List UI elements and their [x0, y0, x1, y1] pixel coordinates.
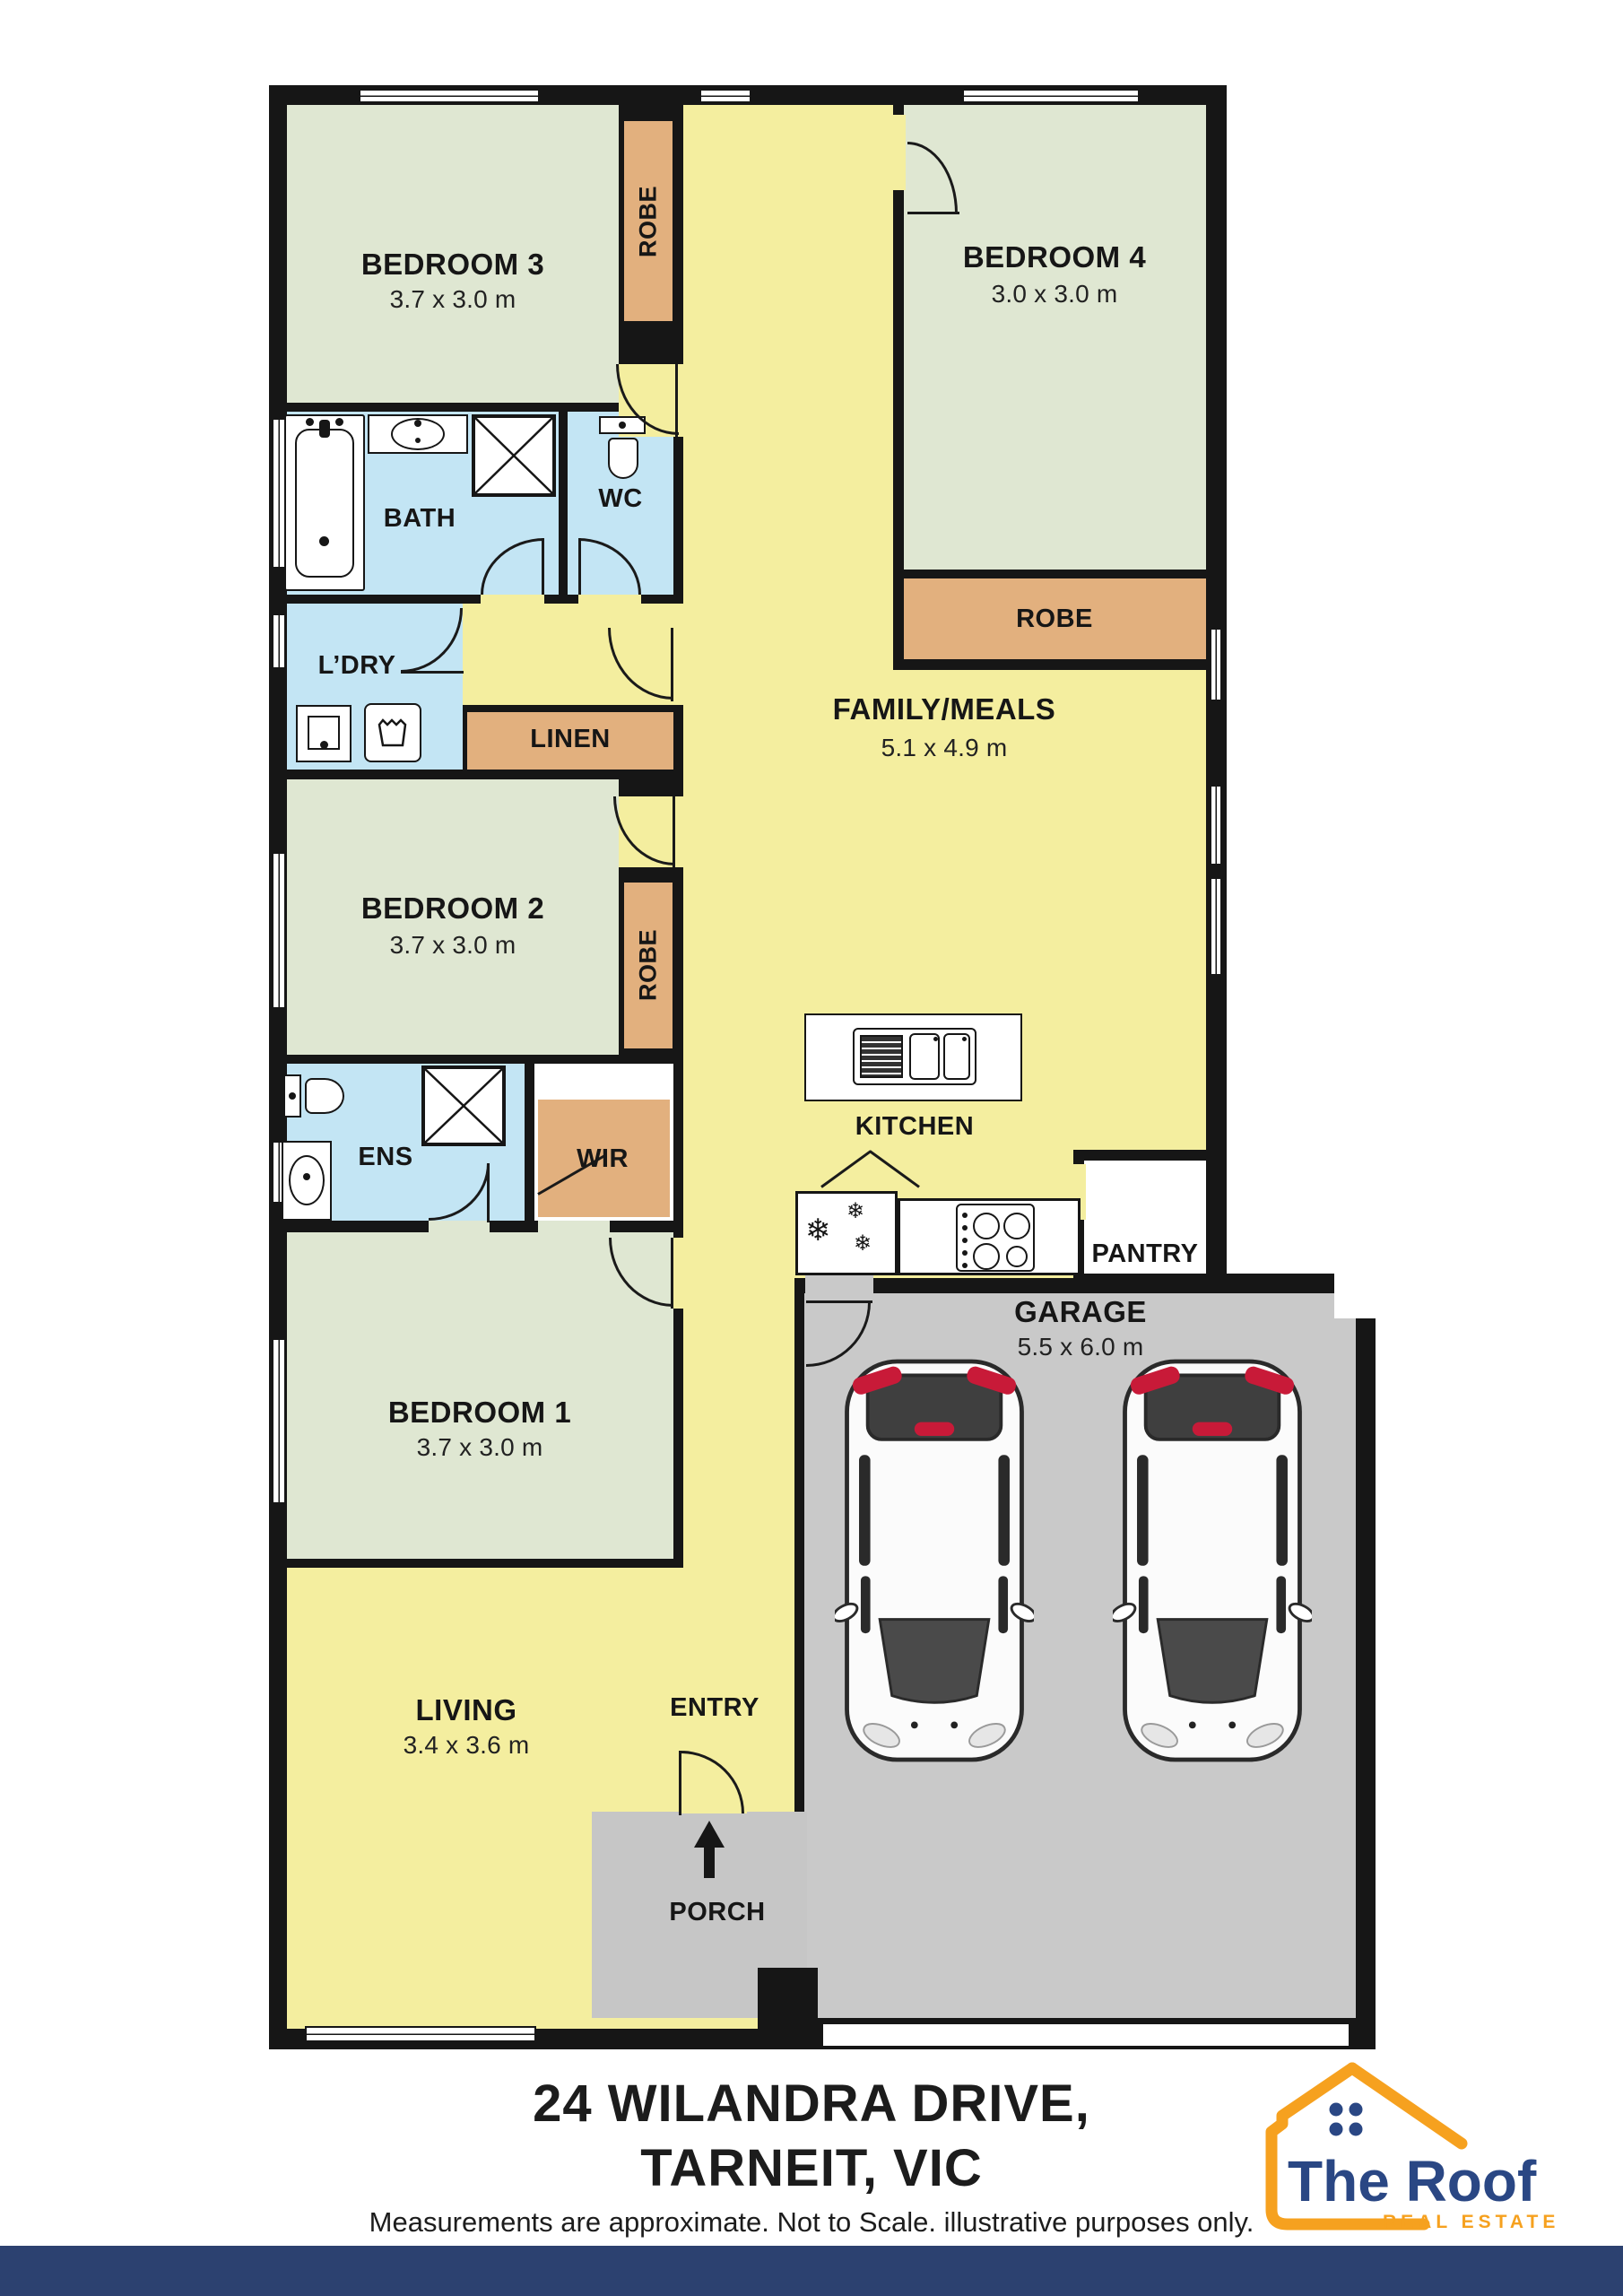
- cooktop-knob: [962, 1263, 968, 1268]
- bathtub-inner: [295, 429, 354, 578]
- floorplan-page: ❄ ❄ ❄: [0, 0, 1623, 2296]
- door-leaf-entry: [679, 1751, 681, 1815]
- bedroom3-dims: 3.7 x 3.0 m: [390, 285, 516, 314]
- cooktop-knob: [962, 1225, 968, 1231]
- garage-corner-notch: [1334, 1274, 1376, 1318]
- wc-label: WC: [598, 484, 642, 514]
- cooktop-knob: [962, 1213, 968, 1218]
- logo-tagline: REAL ESTATE: [1383, 2212, 1559, 2232]
- door-leaf-bedroom1: [671, 1238, 673, 1309]
- bath-drain: [319, 536, 329, 546]
- window-living-bottom: [305, 2026, 536, 2042]
- entry-label: ENTRY: [670, 1693, 759, 1723]
- car-icon: [835, 1350, 1034, 1771]
- window-bedroom4-top: [962, 89, 1140, 103]
- island-drainer: [860, 1035, 903, 1078]
- burner: [1006, 1246, 1028, 1267]
- window-family-right-3: [1210, 877, 1222, 976]
- logo-window-dot-icon: [1350, 2123, 1363, 2136]
- island-tap: [962, 1037, 967, 1041]
- logo-window-dot-icon: [1350, 2103, 1363, 2117]
- opening-bath: [481, 595, 544, 604]
- logo-window-dot-icon: [1330, 2103, 1343, 2117]
- bath-faucet-dot: [306, 418, 314, 426]
- garage-door: [820, 2022, 1351, 2048]
- logo-roof-right-icon: [1352, 2068, 1462, 2144]
- pantry-label: PANTRY: [1092, 1239, 1199, 1269]
- opening-ensuite: [429, 1221, 490, 1232]
- vanity-drain: [415, 438, 421, 443]
- ens-toilet-bowl: [305, 1078, 344, 1114]
- bedroom1-label: BEDROOM 1: [388, 1396, 571, 1430]
- bedroom2-robe-label: ROBE: [635, 929, 663, 1001]
- family-meals-dims: 5.1 x 4.9 m: [881, 734, 1008, 762]
- laundry-tub-drain: [320, 741, 328, 749]
- door-leaf-bath: [542, 538, 544, 595]
- opening-garage: [805, 1275, 873, 1295]
- door-leaf-laundry: [401, 671, 464, 674]
- logo-window-dot-icon: [1330, 2123, 1343, 2136]
- wir-label: WIR: [577, 1144, 629, 1174]
- bedroom4-label: BEDROOM 4: [963, 240, 1146, 274]
- vanity-tap: [414, 420, 421, 427]
- fridge-snowflake-icon: ❄: [854, 1231, 872, 1257]
- bath-faucet-dot: [335, 418, 343, 426]
- window-hall-top: [699, 89, 751, 103]
- washing-machine-glyph: [377, 717, 409, 748]
- living-label: LIVING: [415, 1693, 516, 1727]
- cooktop-knob: [962, 1250, 968, 1256]
- agency-logo: The Roof REAL ESTATE: [1246, 2059, 1578, 2243]
- opening-wc: [578, 595, 641, 604]
- bedroom3-robe-label: ROBE: [635, 186, 663, 257]
- window-bedroom1-left: [272, 1338, 286, 1504]
- garage-dims: 5.5 x 6.0 m: [1018, 1333, 1144, 1361]
- ensuite-label: ENS: [358, 1143, 412, 1172]
- ens-sink-tap: [303, 1173, 310, 1180]
- porch-step: [758, 1968, 818, 2029]
- door-leaf-ensuite: [487, 1163, 490, 1222]
- door-leaf-wc: [578, 538, 581, 595]
- linen-label: LINEN: [530, 725, 611, 754]
- bedroom1-dims: 3.7 x 3.0 m: [417, 1433, 543, 1462]
- car-icon: [1113, 1350, 1312, 1771]
- window-family-right-2: [1210, 785, 1222, 865]
- entry-arrow-icon: [694, 1821, 725, 1848]
- living-dims: 3.4 x 3.6 m: [404, 1731, 530, 1760]
- window-bedroom3-top: [359, 89, 540, 103]
- window-family-right-1: [1210, 628, 1222, 701]
- bedroom3-label: BEDROOM 3: [361, 248, 544, 282]
- family-meals-label: FAMILY/MEALS: [833, 692, 1056, 726]
- laundry-label: L’DRY: [318, 651, 396, 681]
- porch-label: PORCH: [669, 1898, 765, 1927]
- bath-spout: [319, 420, 330, 438]
- burner: [1003, 1213, 1030, 1239]
- island-tap: [933, 1037, 938, 1041]
- opening-bedroom4: [891, 115, 906, 190]
- door-leaf-hall-family: [671, 628, 673, 701]
- kitchen-label: KITCHEN: [855, 1112, 974, 1142]
- opening-wir: [538, 1221, 610, 1232]
- bedroom4-dims: 3.0 x 3.0 m: [992, 280, 1118, 309]
- opening-bedroom1: [673, 1238, 683, 1309]
- ens-toilet-dot: [289, 1092, 296, 1100]
- fridge-snowflake-icon: ❄: [846, 1198, 864, 1224]
- bath-label: BATH: [384, 504, 456, 534]
- bedroom2-dims: 3.7 x 3.0 m: [390, 931, 516, 960]
- ens-sink-icon: [289, 1155, 325, 1205]
- door-leaf-bedroom3: [675, 364, 678, 437]
- ens-shower-icon: [421, 1065, 506, 1146]
- fridge-snowflake-icon: ❄: [805, 1213, 831, 1248]
- door-leaf-garage: [806, 1300, 872, 1303]
- logo-name: The Roof: [1288, 2149, 1537, 2213]
- wc-toilet-dot: [619, 422, 626, 429]
- footer-bar: [0, 2246, 1623, 2296]
- bedroom2-label: BEDROOM 2: [361, 891, 544, 926]
- garage-label: GARAGE: [1014, 1295, 1147, 1329]
- window-laundry-left: [272, 613, 286, 669]
- shower-icon: [472, 414, 556, 497]
- entry-arrow-stem: [704, 1846, 715, 1878]
- bedroom4-robe-label: ROBE: [1016, 604, 1093, 634]
- wc-toilet-bowl: [608, 438, 638, 479]
- burner: [973, 1213, 1000, 1239]
- door-leaf-bedroom2: [673, 796, 675, 867]
- cooktop-knob: [962, 1238, 968, 1243]
- window-bedroom2-left: [272, 852, 286, 1009]
- burner: [973, 1243, 1000, 1270]
- door-leaf-bedroom4: [907, 212, 959, 214]
